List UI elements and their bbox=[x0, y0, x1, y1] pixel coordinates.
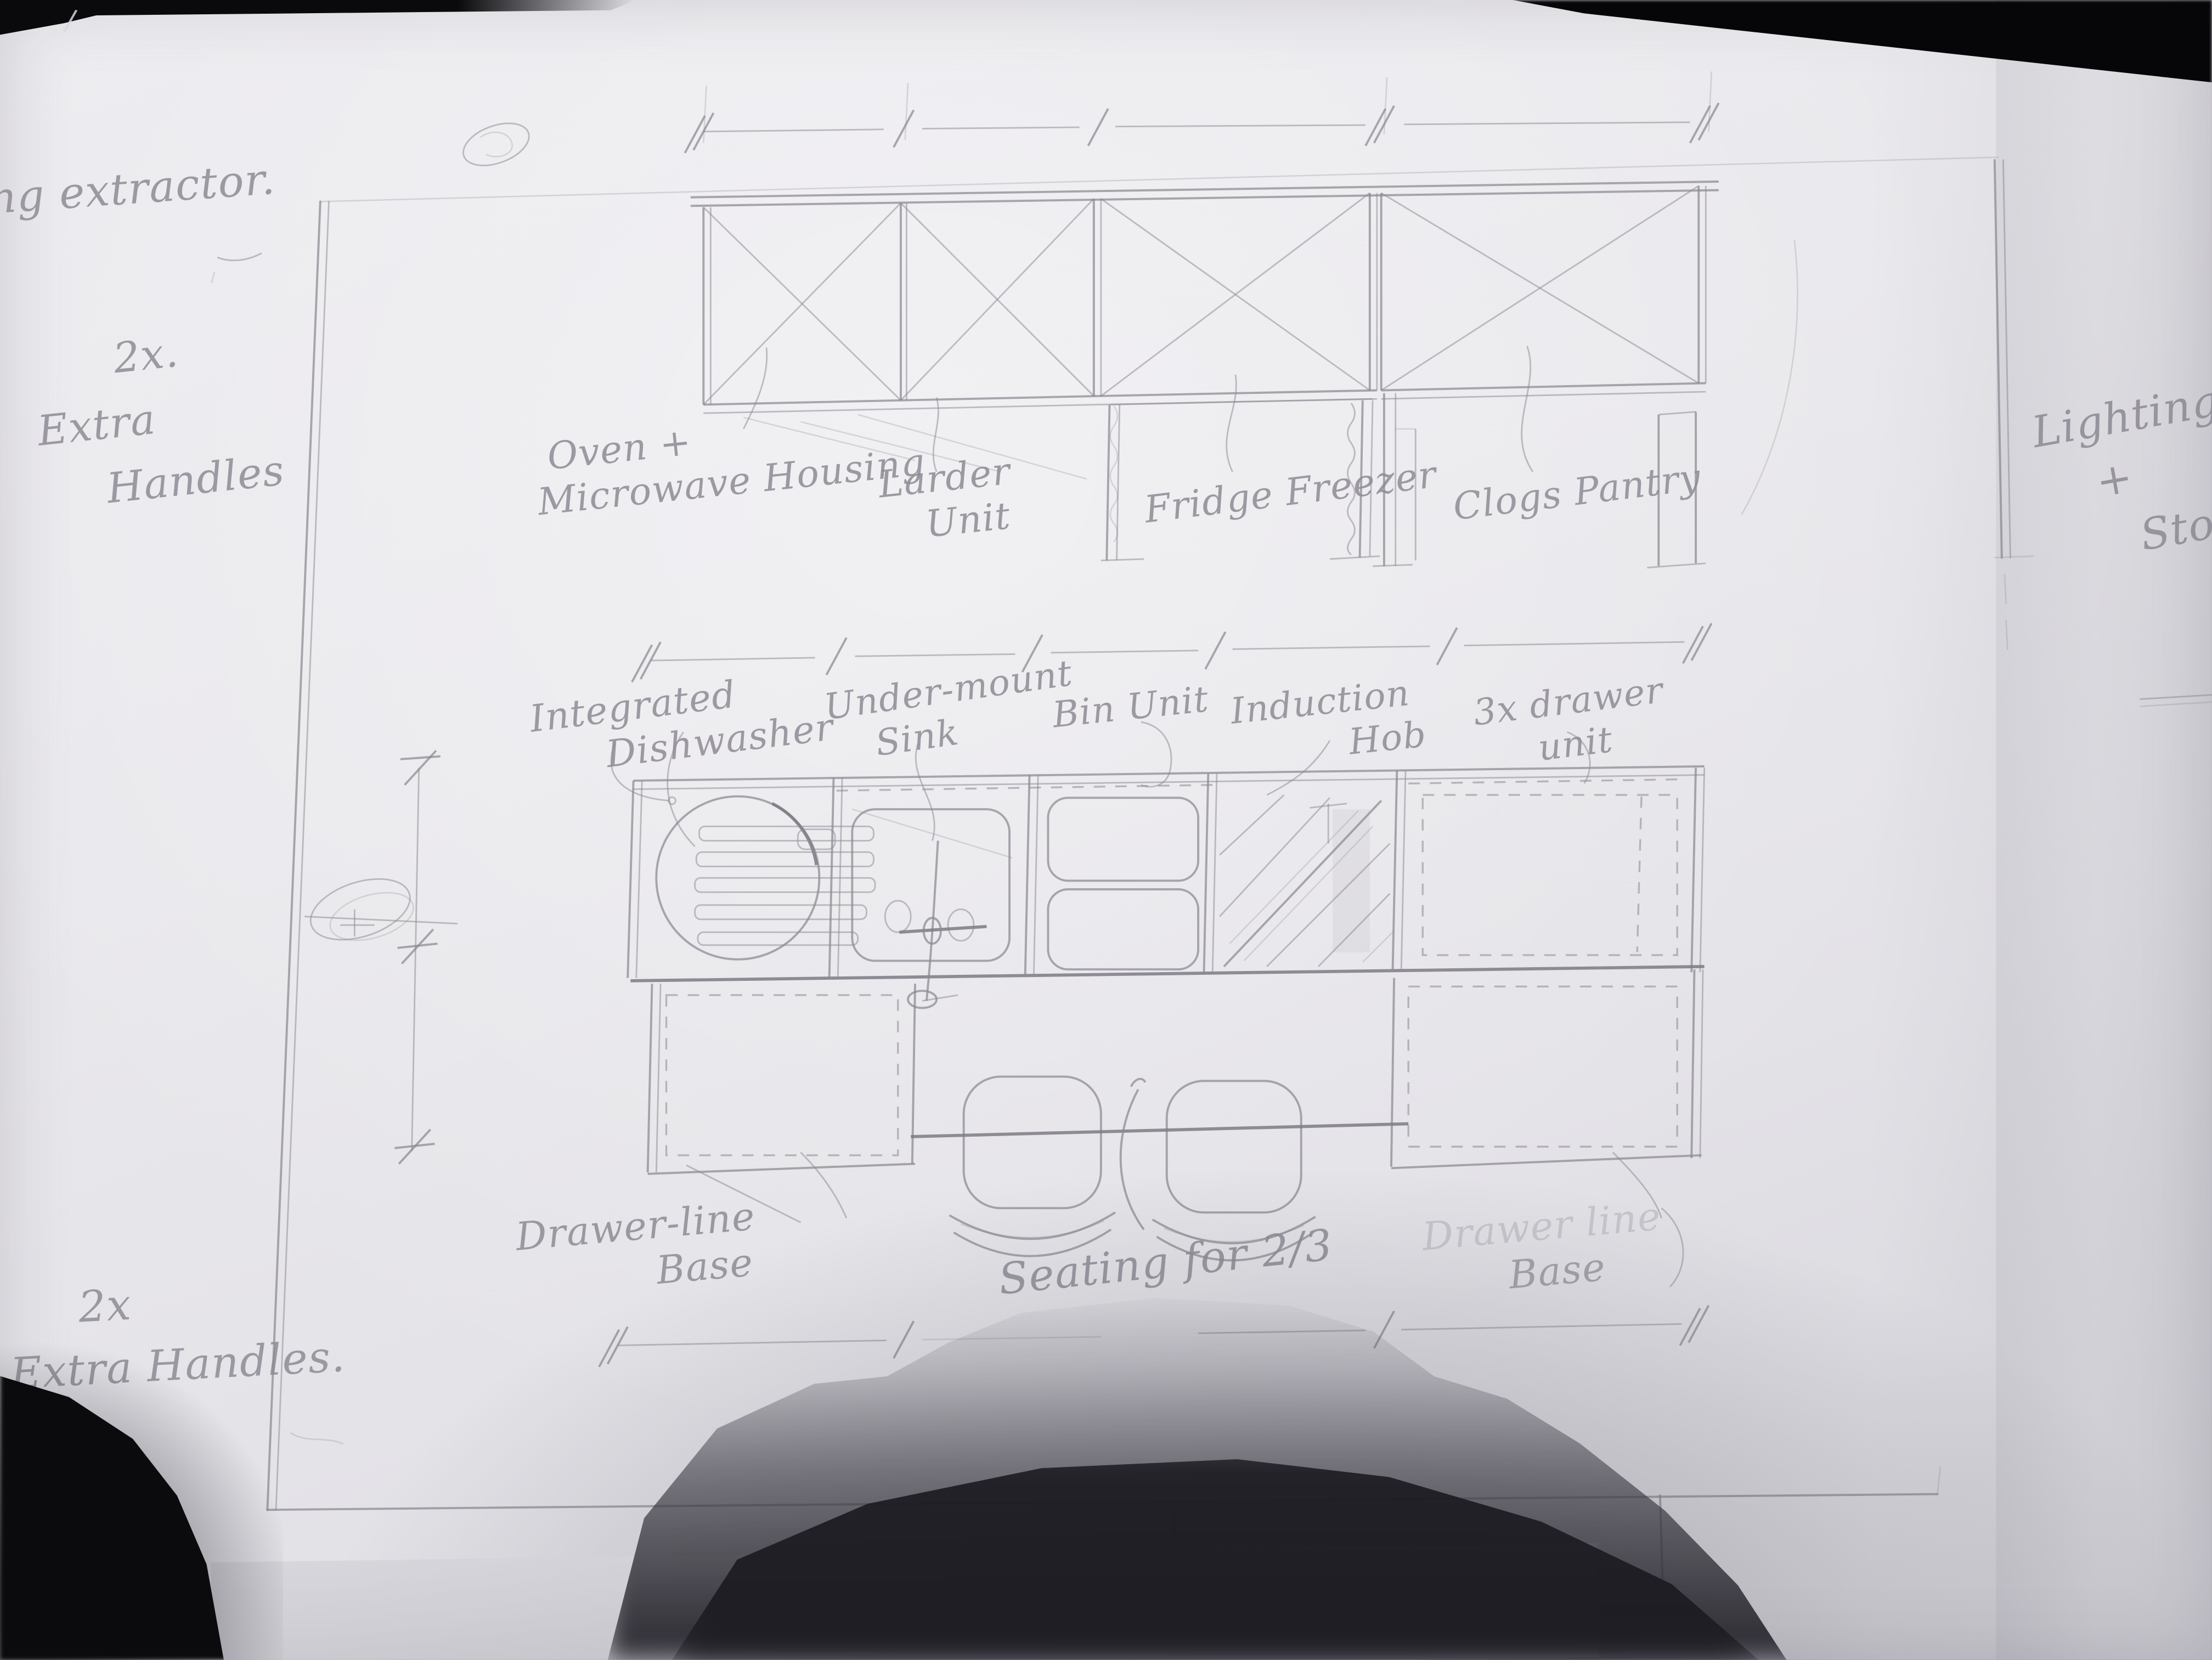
top-dimension-line bbox=[685, 71, 1718, 153]
induction-hob-symbol bbox=[1220, 795, 1392, 967]
hob-line2: Hob bbox=[1347, 713, 1429, 764]
extra-handles-note-top: 2x. Extra Handles bbox=[22, 310, 287, 528]
drawer-base-right bbox=[1391, 969, 1703, 1168]
socket-symbol bbox=[303, 868, 458, 951]
larder-unit-label: Larder Unit bbox=[877, 451, 1018, 554]
dishwasher-symbol bbox=[656, 797, 875, 959]
photographed-kitchen-sketch: ung extractor. 2x. Extra Handles Lightin… bbox=[0, 0, 2212, 1660]
bin-unit-symbol bbox=[1048, 798, 1198, 969]
drawer-unit-symbol bbox=[1408, 779, 1687, 955]
larder-line2: Unit bbox=[924, 495, 1018, 549]
